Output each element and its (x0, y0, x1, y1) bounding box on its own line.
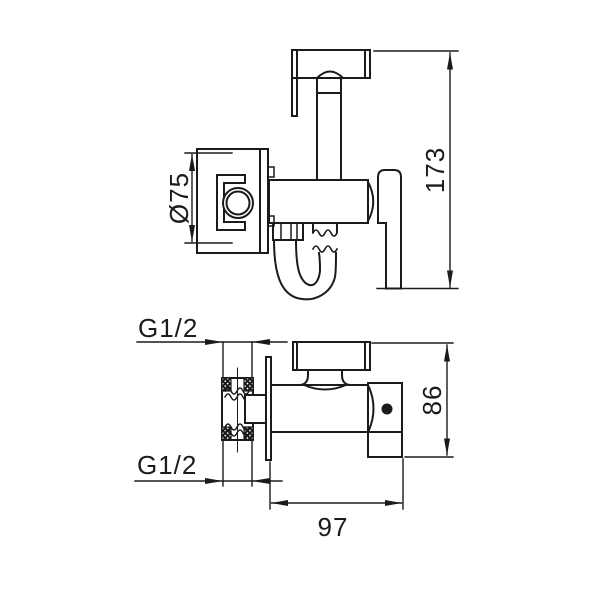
dimension-label-depth: 86 (417, 385, 447, 416)
dim-depth: 86 (372, 343, 453, 457)
dim-length: 97 (270, 459, 403, 542)
hose-nut (273, 223, 303, 240)
sprayer-shaft (317, 78, 341, 180)
plan-view: G1/2 G1/2 86 (135, 313, 453, 542)
wall-plate (197, 149, 274, 253)
elevation-view: Ø75 173 (164, 50, 458, 299)
bidet-valve-drawing: Ø75 173 (0, 0, 600, 600)
technical-drawing-page: Ø75 173 (0, 0, 600, 600)
valve-body (269, 180, 373, 223)
hose (274, 223, 337, 299)
dimension-label-overall-height: 173 (420, 147, 450, 193)
dimension-label-thread-bottom: G1/2 (137, 450, 197, 480)
dimension-label-plate-diameter: Ø75 (164, 172, 194, 224)
dim-thread-top: G1/2 (137, 313, 287, 377)
inlet-stub (245, 395, 266, 423)
dim-thread-bottom: G1/2 (135, 441, 282, 486)
lever-pin-dot (382, 404, 393, 415)
sprayer-head (292, 50, 370, 116)
lever-handle (378, 170, 401, 289)
dimension-label-length: 97 (318, 512, 349, 542)
threaded-fitting (222, 368, 266, 452)
sprayer-holder-plan (293, 342, 370, 390)
dimension-label-thread-top: G1/2 (138, 313, 198, 343)
